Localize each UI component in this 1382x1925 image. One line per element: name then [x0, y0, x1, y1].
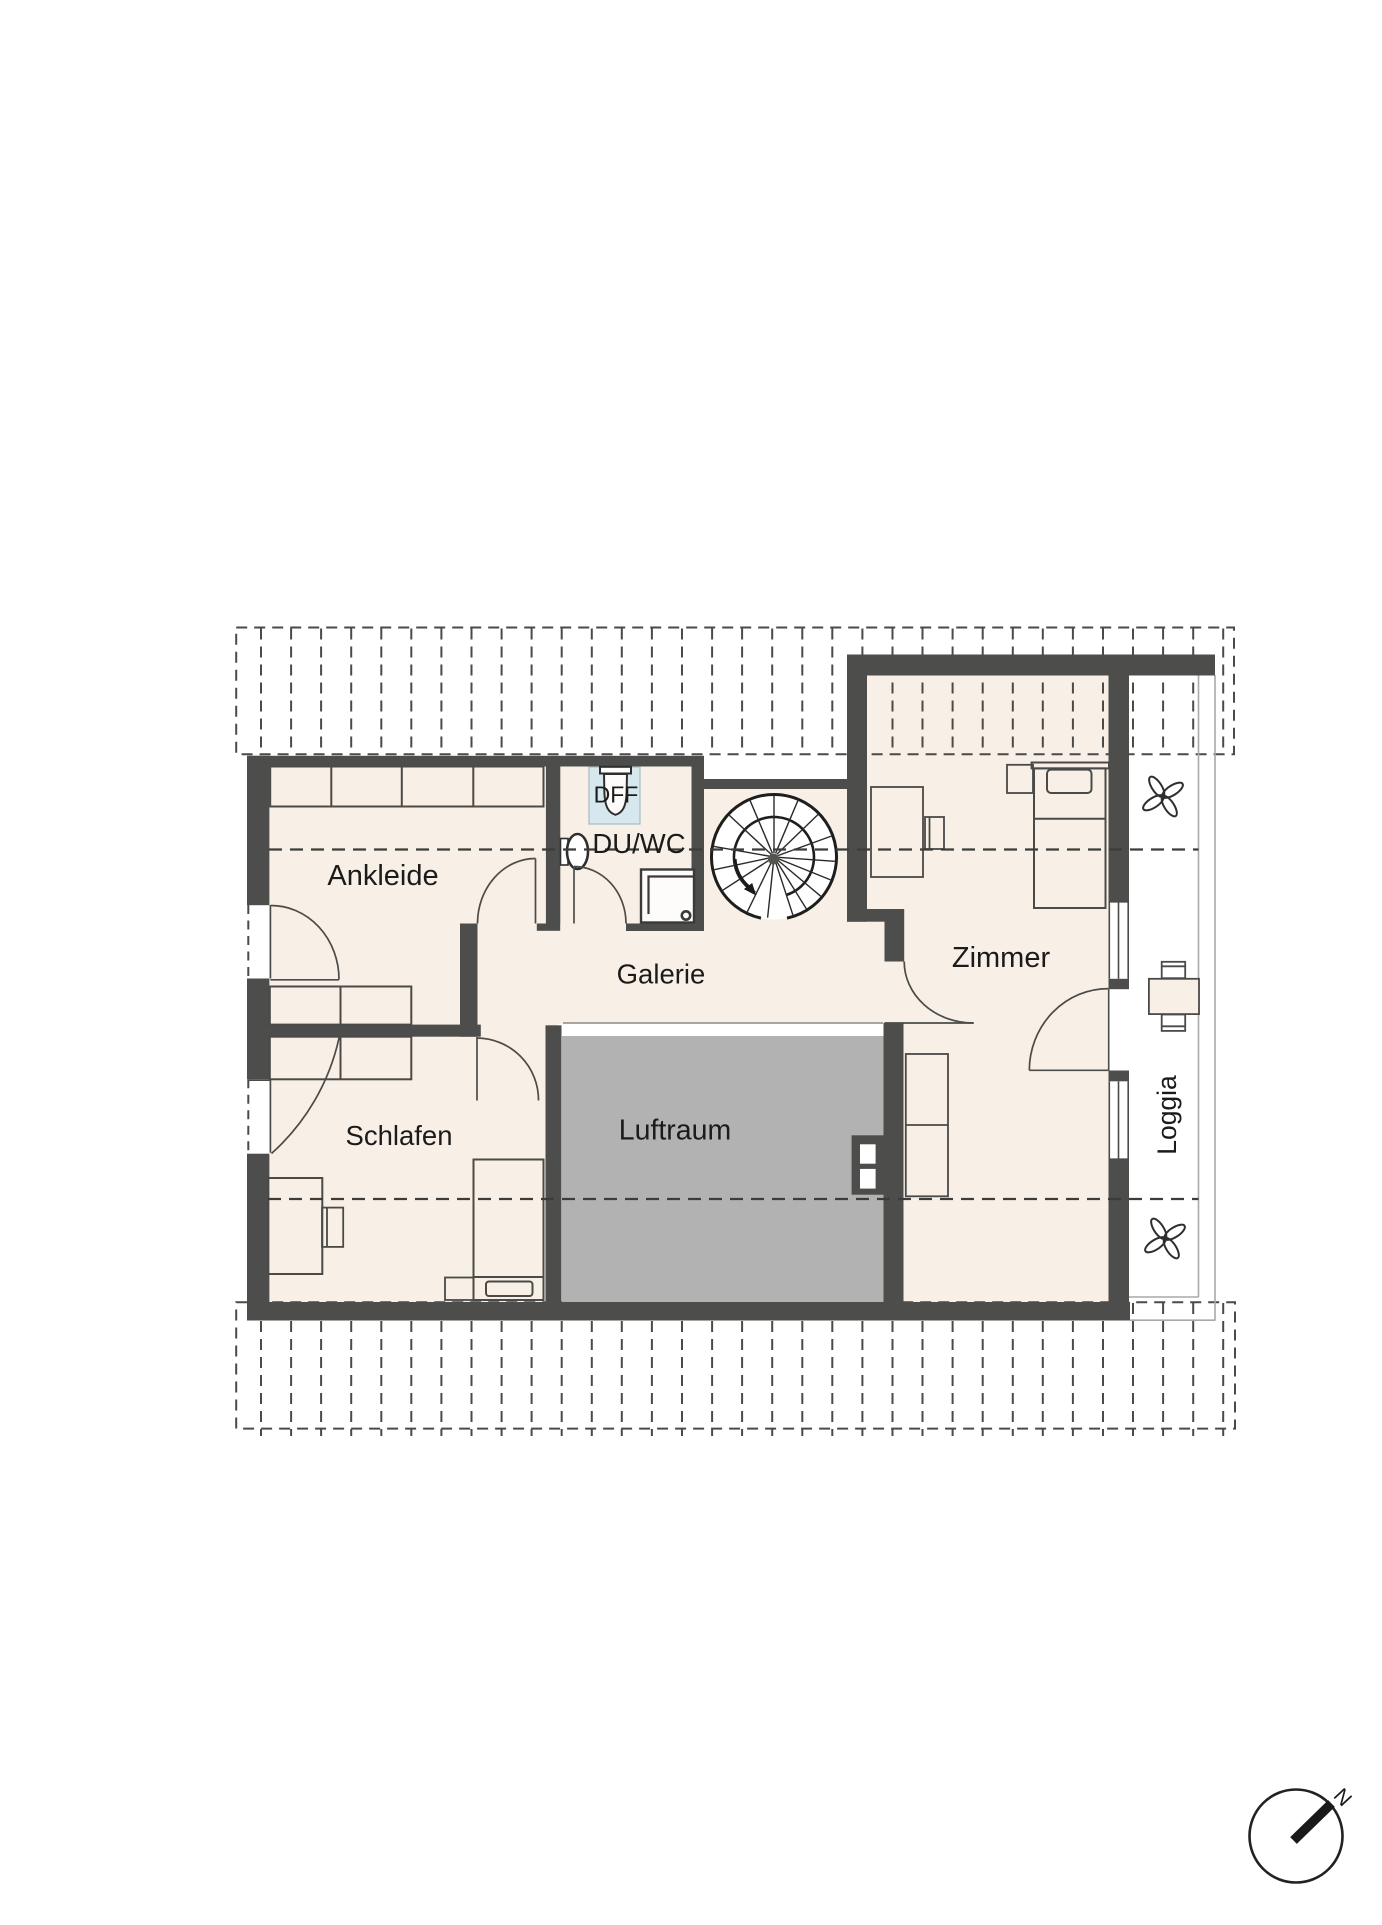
- svg-text:Schlafen: Schlafen: [345, 1120, 452, 1151]
- svg-text:Zimmer: Zimmer: [952, 942, 1051, 974]
- svg-text:Luftraum: Luftraum: [619, 1115, 731, 1147]
- svg-text:DU/WC: DU/WC: [592, 828, 685, 859]
- svg-text:Ankleide: Ankleide: [327, 860, 438, 892]
- svg-text:DFF: DFF: [594, 782, 639, 808]
- svg-text:Galerie: Galerie: [617, 959, 706, 990]
- svg-text:Loggia: Loggia: [1152, 1075, 1182, 1155]
